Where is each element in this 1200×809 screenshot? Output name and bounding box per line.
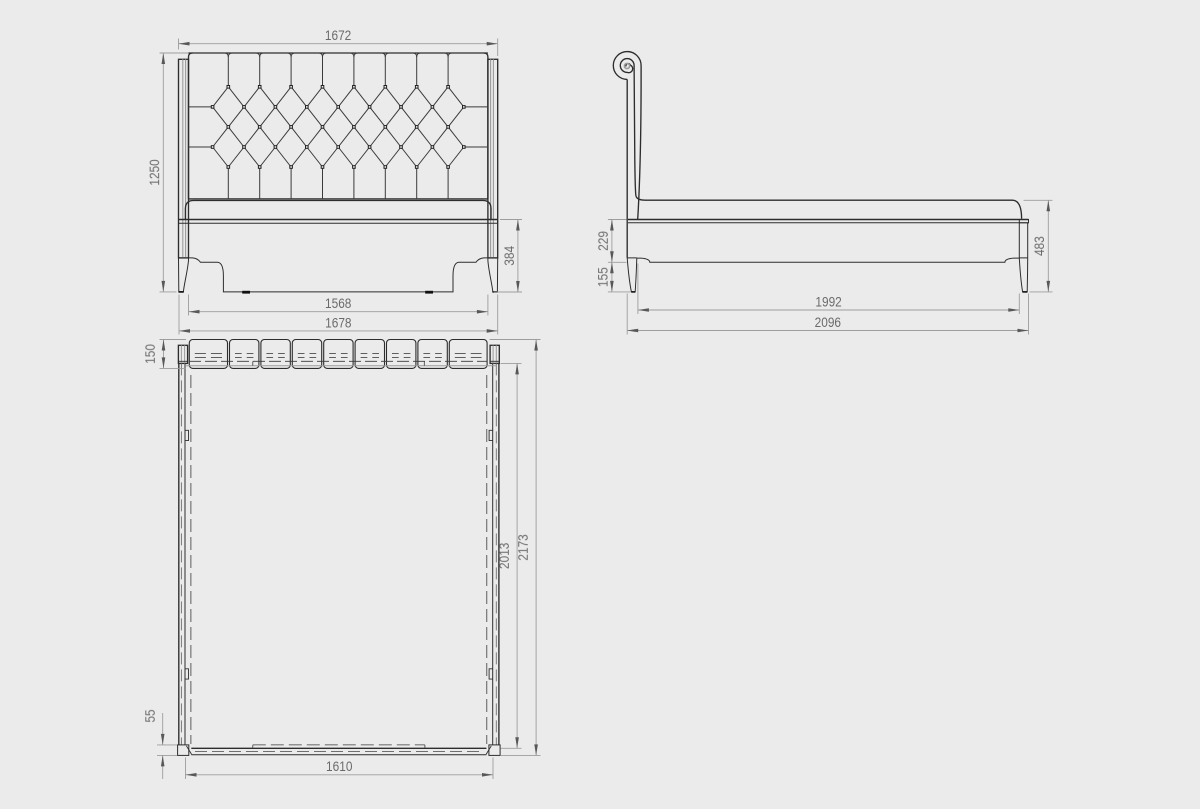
svg-text:55: 55 (143, 709, 158, 722)
svg-text:2173: 2173 (516, 534, 531, 560)
svg-text:150: 150 (143, 344, 158, 364)
svg-text:1672: 1672 (325, 28, 351, 43)
svg-text:483: 483 (1032, 236, 1047, 256)
svg-text:2013: 2013 (497, 543, 512, 569)
svg-text:155: 155 (596, 267, 611, 287)
svg-text:1678: 1678 (325, 315, 351, 330)
svg-text:1568: 1568 (325, 296, 351, 311)
svg-text:229: 229 (596, 231, 611, 251)
svg-text:1610: 1610 (326, 759, 353, 774)
svg-text:384: 384 (502, 245, 517, 265)
svg-text:1250: 1250 (147, 159, 162, 186)
svg-text:1992: 1992 (815, 294, 841, 309)
svg-text:2096: 2096 (815, 315, 841, 330)
